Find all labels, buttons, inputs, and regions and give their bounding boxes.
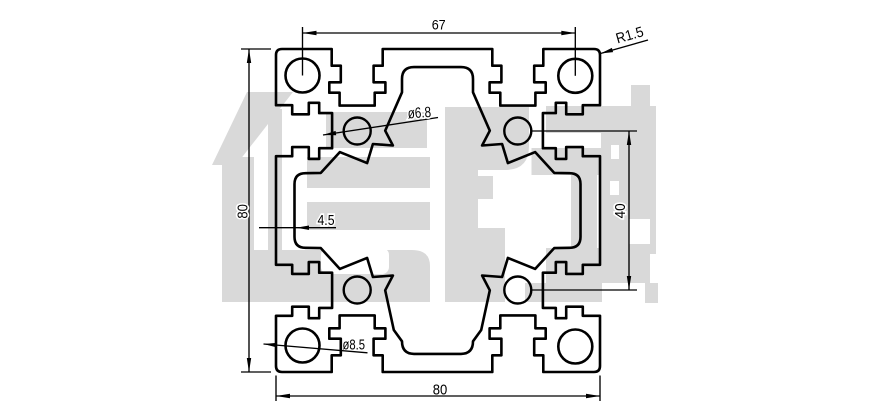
svg-text:67: 67 bbox=[432, 16, 446, 32]
svg-text:80: 80 bbox=[234, 204, 251, 219]
svg-text:80: 80 bbox=[433, 381, 448, 398]
svg-text:R1.5: R1.5 bbox=[614, 24, 645, 47]
svg-text:ø8.5: ø8.5 bbox=[343, 337, 366, 354]
svg-text:4.5: 4.5 bbox=[318, 212, 335, 229]
svg-text:40: 40 bbox=[612, 203, 629, 218]
svg-text:ø6.8: ø6.8 bbox=[407, 104, 432, 123]
